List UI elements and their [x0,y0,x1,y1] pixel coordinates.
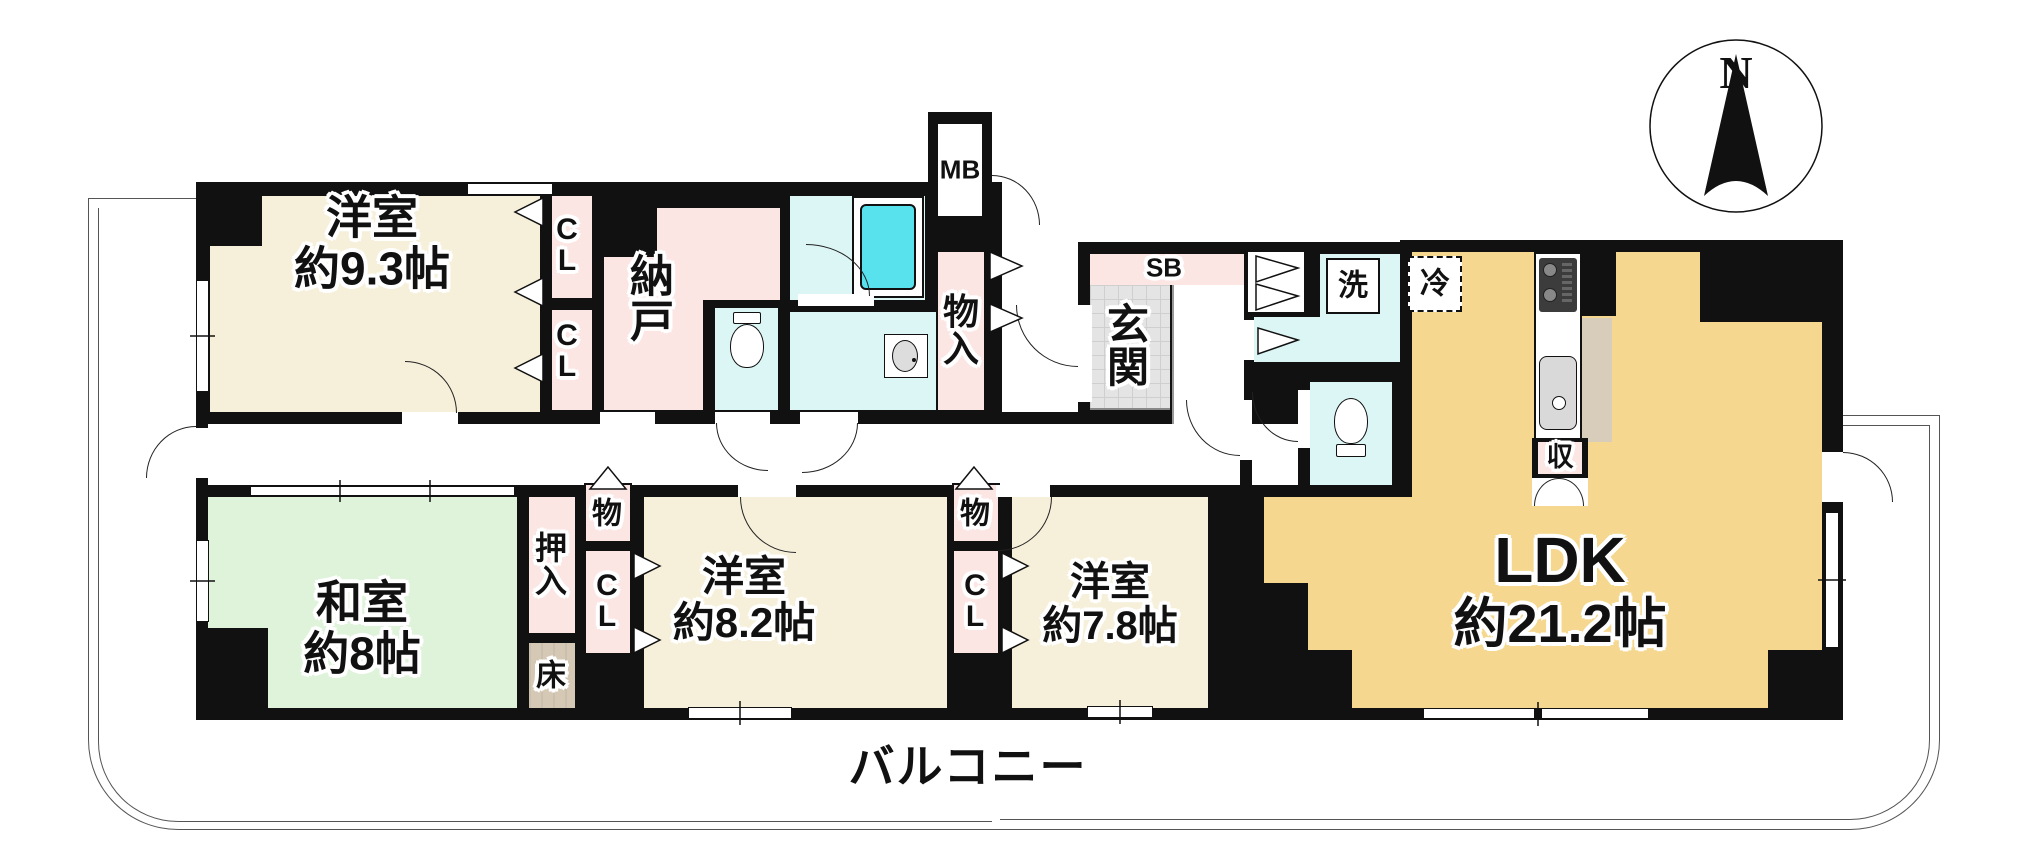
room-name: LDK [1494,524,1626,596]
window-west-bedroom-top [467,183,553,195]
stove-grill-icon [1562,263,1572,303]
label-kitchen-storage: 収 [1547,443,1574,473]
closet-label-mono2: 物 [592,498,622,531]
toilet-icon [1336,444,1366,457]
room-name: 洋室 [326,191,418,243]
closet-label-monoire: 物入 [941,293,981,367]
door-arc-front-door [1016,305,1078,367]
window-ldk-bottom-2 [1541,708,1649,719]
door-gap-ldk-hall [1240,400,1252,460]
wall-kitchen-chunk [1582,240,1616,316]
room-label-storage: 納戸 [628,255,676,346]
label-tokonoma: 床 [536,660,566,693]
room-size: 約8帖 [303,627,421,679]
window-tatami-left [196,540,209,622]
pillar-west-bedroom [208,194,262,246]
room-size: 約9.3帖 [294,242,450,294]
stove-burner-icon [1543,263,1557,277]
toilet-icon [1334,398,1368,444]
closet-label-cl3: CL [959,571,991,633]
label-fridge: 冷 [1420,268,1450,301]
door-gap-storage [600,412,655,424]
room-label-ldk: LDK 約21.2帖 [1453,525,1666,655]
room-name: 洋室 [702,553,786,600]
pillar-ldk-br [1768,650,1843,720]
washroom2-door-slot [1248,252,1304,312]
window-ldk-east [1825,512,1839,648]
toilet-icon [730,324,764,368]
door-gap-east-bedroom [996,485,1050,497]
room-name: 和室 [316,576,408,628]
room-label-entrance: 玄関 [1105,303,1151,390]
toilet-icon [733,312,761,324]
label-shoebox: SB [1146,254,1182,283]
room-ldk-arm1 [1264,497,1414,583]
room-size: 約21.2帖 [1453,595,1666,655]
washbasin-dot-icon [912,358,916,362]
balcony-outline-top-right-inner [1832,425,1930,426]
compass-n-label: N [1719,47,1752,98]
closet-label-cl2: CL [591,571,623,633]
window-west-bedroom-left [196,280,209,392]
door-gap-toilet2 [1298,390,1310,448]
front-door-leaf [1078,305,1092,402]
sink-icon [1539,356,1577,430]
room-size: 約8.2帖 [673,599,815,646]
stove-burner-icon [1543,288,1557,302]
closet-label-cl-top: CL [551,215,583,277]
door-arc-meterbox [992,175,1040,225]
bathtub-icon [860,204,916,290]
room-size: 約7.8帖 [1042,604,1178,648]
room-name: 洋室 [1070,560,1150,604]
compass-circle [1650,40,1822,212]
room-label-east-bedroom: 洋室 約7.8帖 [1042,560,1178,648]
room-label-tatami: 和室 約8帖 [303,577,421,678]
room-washroom2-west [1254,317,1324,362]
room-label-center-bedroom: 洋室 約8.2帖 [673,554,815,646]
faucet-icon [1552,396,1566,410]
door-gap-ldk-east [1822,452,1843,502]
door-gap-balcony-west [196,428,208,478]
floor-plan: N 洋室 約9.3帖 CL CL 納戸 MB 物入 S [0,0,2032,865]
window-ldk-bottom-1 [1423,708,1535,719]
washroom2-slide-door [1242,320,1254,360]
closet-label-cl-bottom: CL [551,321,583,383]
window-tatami-shoji [250,486,515,496]
closet-label-mono3: 物 [960,498,990,531]
washbasin-bowl-icon [892,340,918,372]
label-meterbox: MB [940,156,980,185]
room-ldk-arm3 [1352,650,1414,708]
closet-label-oshiire: 押入 [533,532,569,598]
label-washer: 洗 [1338,270,1368,303]
window-east-bedroom-bottom [1087,706,1153,718]
door-gap-west-bedroom [402,412,458,424]
balcony-outline-top-right [1832,415,1940,416]
balcony-outline-top-left [88,198,202,199]
balcony-label: バルコニー [848,742,1087,793]
window-center-bedroom-bottom [688,707,792,719]
door-gap-center-bedroom [738,485,796,497]
room-ldk-arm2 [1308,583,1414,650]
pillar-tatami-bl [202,628,268,720]
room-label-west-bedroom: 洋室 約9.3帖 [294,192,450,293]
kitchen-counter-return [1582,318,1612,442]
entrance-step-line [1090,408,1170,410]
north-arrow-icon [1704,54,1768,196]
